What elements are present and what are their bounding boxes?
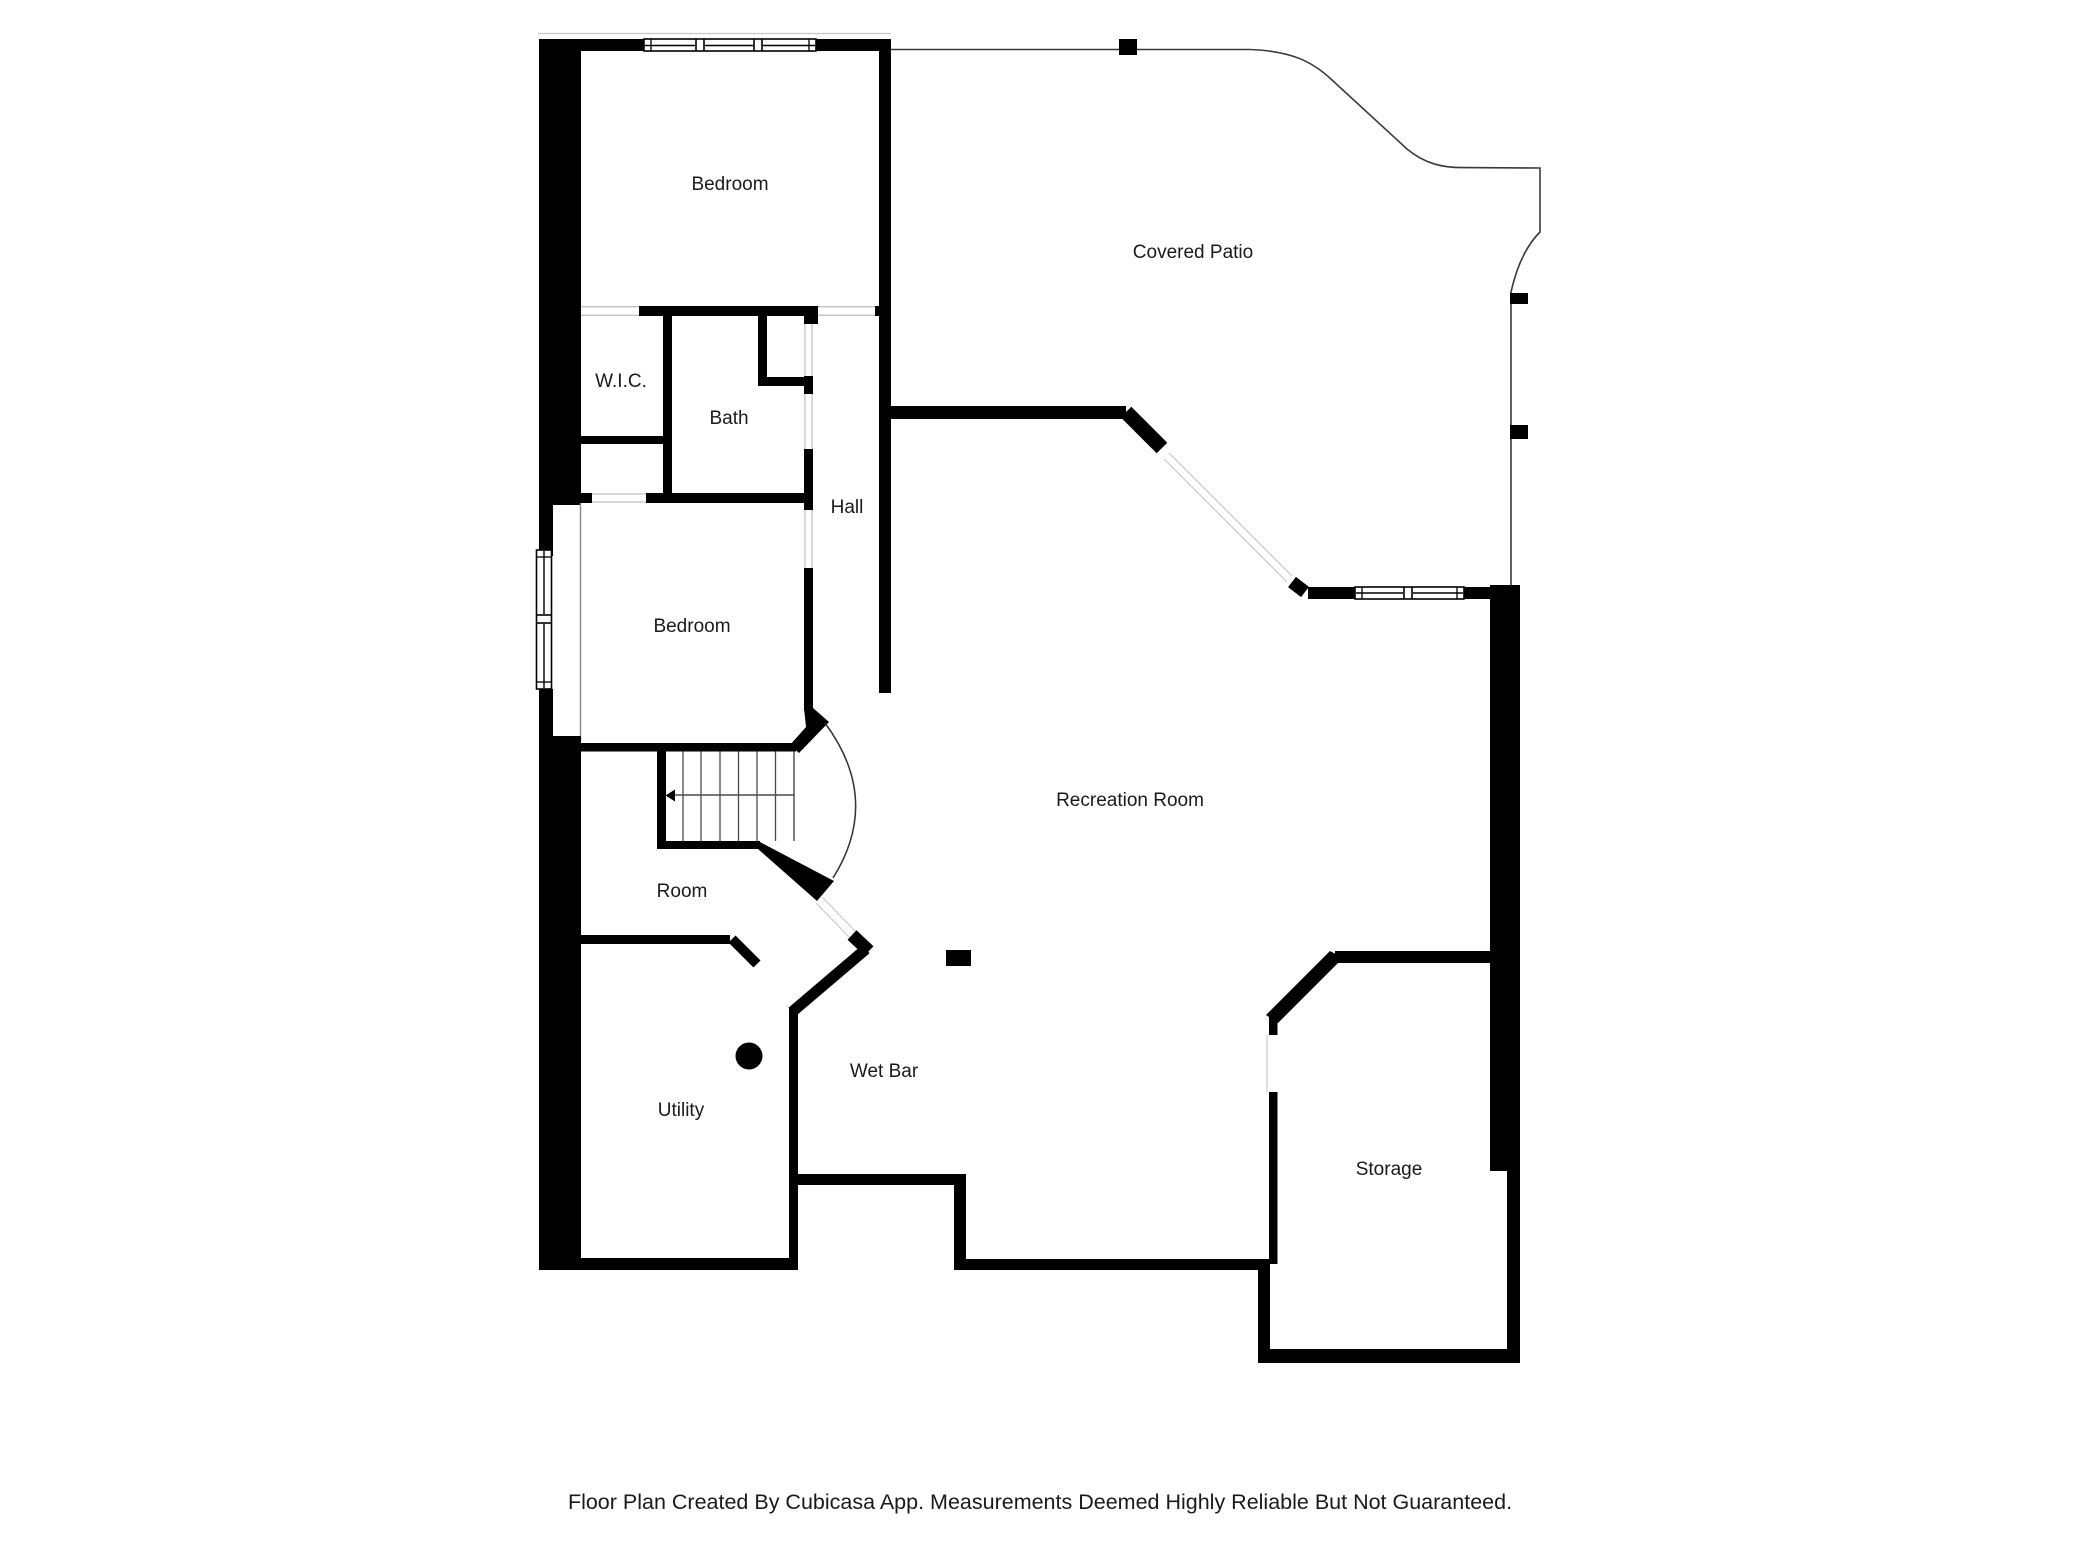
svg-text:W.I.C.: W.I.C. — [595, 371, 647, 392]
svg-text:Bedroom: Bedroom — [691, 174, 768, 195]
svg-text:Covered Patio: Covered Patio — [1133, 242, 1253, 263]
svg-text:Hall: Hall — [831, 497, 864, 518]
svg-text:Bedroom: Bedroom — [653, 616, 730, 637]
svg-text:Floor Plan Created By Cubicasa: Floor Plan Created By Cubicasa App. Meas… — [568, 1490, 1512, 1514]
svg-text:Bath: Bath — [709, 408, 748, 429]
svg-text:Utility: Utility — [658, 1100, 705, 1121]
svg-text:Room: Room — [657, 881, 708, 902]
svg-text:Recreation Room: Recreation Room — [1056, 790, 1204, 811]
svg-text:Wet Bar: Wet Bar — [850, 1061, 919, 1082]
svg-text:Storage: Storage — [1356, 1159, 1423, 1180]
